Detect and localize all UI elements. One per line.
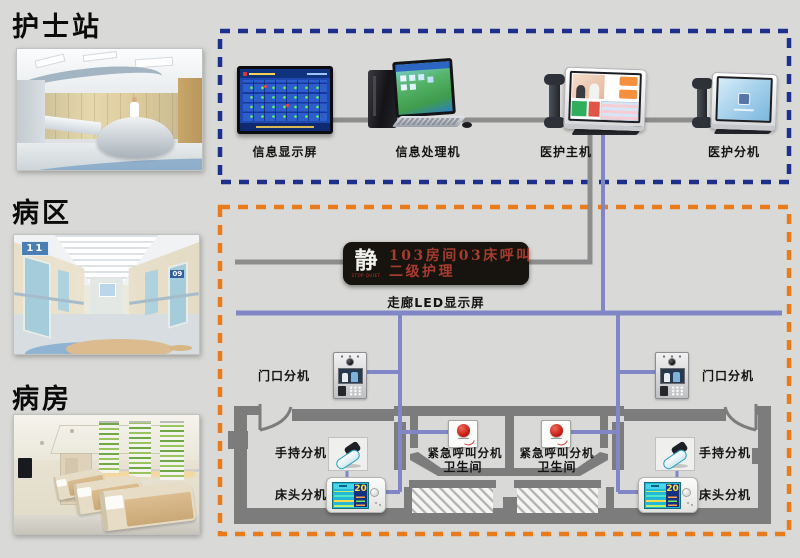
floor-blue-band [16,153,203,171]
green-tile [572,100,587,116]
header-text-line [249,73,275,75]
bathroom-label-left: 卫生间 [428,461,498,474]
emergency-call-label-left: 紧急呼叫分机 [420,447,510,460]
bedside-extension-label-left: 床头分机 [263,489,339,502]
quiet-caption: STOP QUIET [350,273,382,278]
extension-handset [697,82,707,124]
gray-connection-lines [235,120,738,262]
left-wall [17,80,45,148]
bathroom-label-right: 卫生间 [522,461,592,474]
mic-dots [687,502,689,504]
section-title-ward-area: 病区 [12,200,72,227]
status-table [601,102,638,121]
bed-status-grid [243,80,327,121]
room-number-sign: 09 [170,270,184,278]
door-extension-device-left [333,352,367,399]
screen-tiles [400,75,406,81]
handheld-extension-label-right: 手持分机 [687,447,763,460]
nurse-call-system-diagram: 护士站 病区 11 09 [0,0,800,558]
led-message: 103房间03床呼叫 二级护理 [389,248,533,280]
red-cross-icon [243,72,247,76]
emergency-button [457,424,470,437]
door-extension-label-right: 门口分机 [690,370,766,383]
bedside-extension-label-right: 床头分机 [687,489,763,502]
floor-circle-small [169,345,191,351]
led-message-line1: 103房间03床呼叫 [389,248,533,264]
info-display-label: 信息显示屏 [237,146,333,159]
host-tablet [563,67,647,132]
host-screen [568,71,642,123]
medical-extension-device [690,70,778,136]
nurse-station-photo [16,48,203,171]
medical-host-label: 医护主机 [518,146,614,159]
display-screen [240,69,330,131]
bed-curtain [99,421,119,473]
handheld-extension-label-left: 手持分机 [263,447,339,460]
door-extension-label-left: 门口分机 [246,370,322,383]
quiet-character: 静 [350,250,382,273]
corridor-led-display-device: 静 STOP QUIET 103房间03床呼叫 二级护理 [343,242,529,285]
emergency-call-label-right: 紧急呼叫分机 [512,447,602,460]
keypad [349,386,362,396]
nurse-figure [130,102,139,117]
ward-corridor-photo: 11 09 [13,234,200,355]
header-text-line [307,73,327,75]
floor-circle-tan [66,339,173,354]
extension-tablet [710,72,778,131]
card-reader [338,386,346,396]
camera-icon [668,358,676,366]
wood-cabinet [178,78,202,148]
info-processor-device [366,60,472,132]
extension-screen [715,76,773,123]
red-tile [588,101,599,117]
pc-screen [395,61,452,115]
bed-number-value: 20 [354,484,367,507]
ward-door [58,269,69,312]
camera-icon [346,358,354,366]
section-title-ward-room: 病房 [12,386,72,413]
quiet-sign: 静 STOP QUIET [350,250,382,278]
ward-door [145,269,158,315]
display-footer [240,123,330,131]
mic-dots [375,502,377,504]
emergency-call-device-left [448,420,478,448]
screen-header [646,484,667,489]
intercom-screen [660,368,685,384]
ward-room-photo [13,414,200,535]
screen-rows [646,491,667,507]
section-title-nurse-station: 护士站 [12,14,102,41]
card-reader [660,386,668,396]
keypad [671,386,684,396]
emergency-call-device-right [541,420,571,448]
emergency-button [550,424,563,437]
medical-host-device [540,64,650,138]
bed-number-value: 20 [666,484,679,507]
info-display-screen-device [237,66,333,134]
wall-tv [18,458,33,478]
host-handset [549,78,560,124]
call-button [370,488,379,497]
video-call-area [572,74,604,99]
end-window [99,283,116,297]
intercom-screen [338,368,363,384]
pc-keyboard [392,116,467,127]
door-extension-device-right [655,352,689,399]
led-message-line2: 二级护理 [389,264,533,280]
ceiling-lamp [70,429,74,433]
alarm-dots [264,85,267,88]
bed-curtain [160,421,184,481]
orange-button [620,77,638,87]
pc-mouse [462,122,472,128]
bedside-screen: 20 [644,482,681,509]
corridor-led-label: 走廊LED显示屏 [343,296,529,310]
room-number-sign: 11 [21,241,49,256]
display-header [240,69,330,78]
info-processor-label: 信息处理机 [380,146,476,159]
pc-monitor [392,58,456,118]
orange-button [619,89,637,99]
medical-extension-label: 医护分机 [686,146,782,159]
bed-curtain [129,421,151,477]
